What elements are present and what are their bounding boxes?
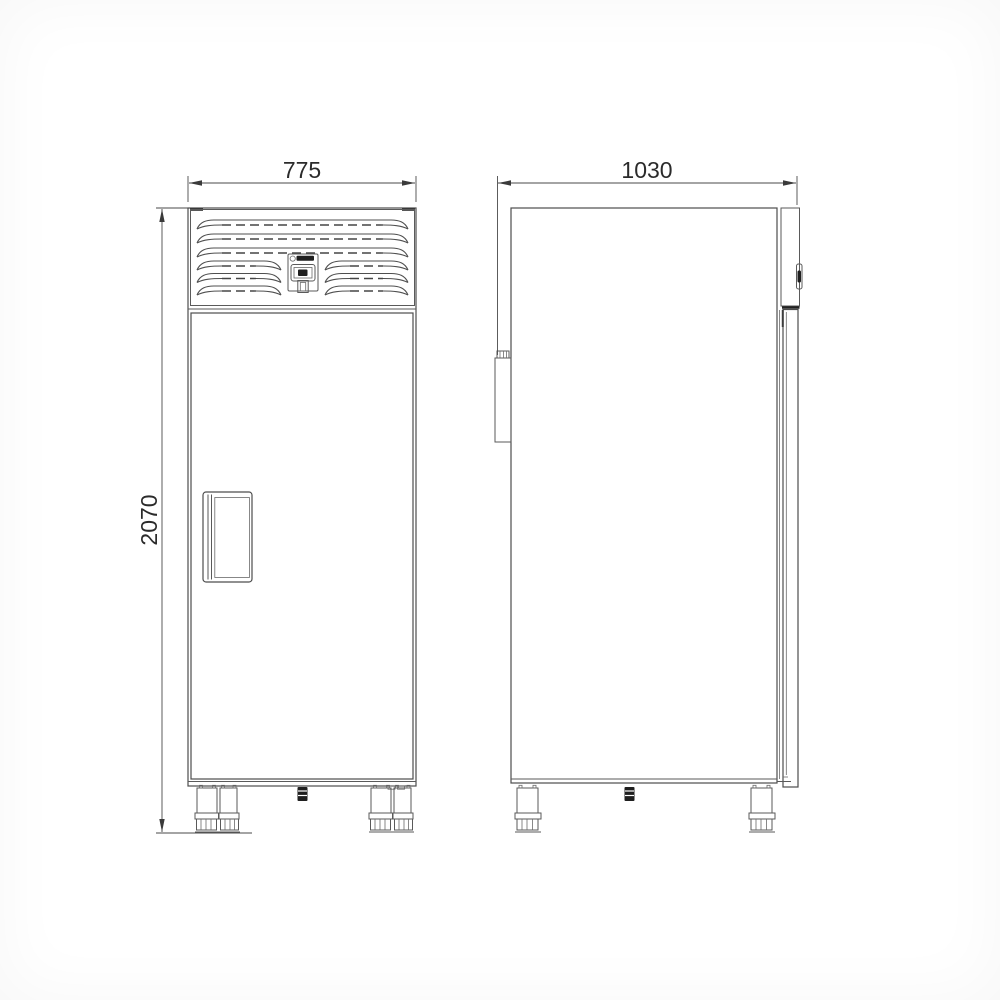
front-door	[191, 313, 413, 779]
dimension-side-depth: 1030	[498, 157, 798, 355]
louver-blade	[197, 248, 408, 257]
adjustable-foot	[195, 813, 240, 832]
louver-blade	[197, 234, 408, 243]
louver-blade	[197, 261, 281, 270]
refrigerator-dimension-drawing: 775 1030 2070	[0, 0, 1000, 1000]
front-left-leg	[195, 785, 240, 832]
dimensions: 775 1030 2070	[136, 157, 797, 833]
control-panel	[288, 254, 318, 293]
wall-spacer	[495, 351, 511, 442]
front-cabinet-outline	[188, 208, 416, 786]
louver-blade	[197, 220, 408, 229]
brand-logo-text	[297, 256, 315, 261]
dimension-height: 2070	[136, 208, 252, 833]
dimension-label-height: 2070	[136, 494, 162, 545]
technical-drawing-page: 775 1030 2070	[0, 0, 1000, 1000]
front-view	[188, 208, 416, 832]
dimension-label-width: 775	[283, 157, 321, 183]
dimension-label-depth: 1030	[621, 157, 672, 183]
adjustable-foot	[369, 813, 414, 832]
louver-blade	[325, 274, 408, 283]
drain-outlet-side	[625, 787, 635, 801]
side-cabinet-outline	[511, 208, 777, 783]
side-front-leg	[515, 785, 541, 832]
side-view	[495, 208, 802, 832]
temperature-display	[291, 265, 315, 282]
side-rear-leg	[749, 785, 775, 832]
dimension-front-width: 775	[188, 157, 416, 202]
louver-blade	[197, 286, 281, 295]
side-door-edge	[777, 310, 798, 788]
door-panel	[191, 313, 413, 779]
louver-blade	[197, 274, 281, 283]
front-right-leg	[369, 785, 414, 832]
louver-blade	[325, 261, 408, 270]
drain-outlet-front	[298, 787, 308, 801]
door-handle	[203, 492, 252, 582]
brand-logo-icon	[290, 256, 295, 261]
louver-blade	[325, 286, 408, 295]
